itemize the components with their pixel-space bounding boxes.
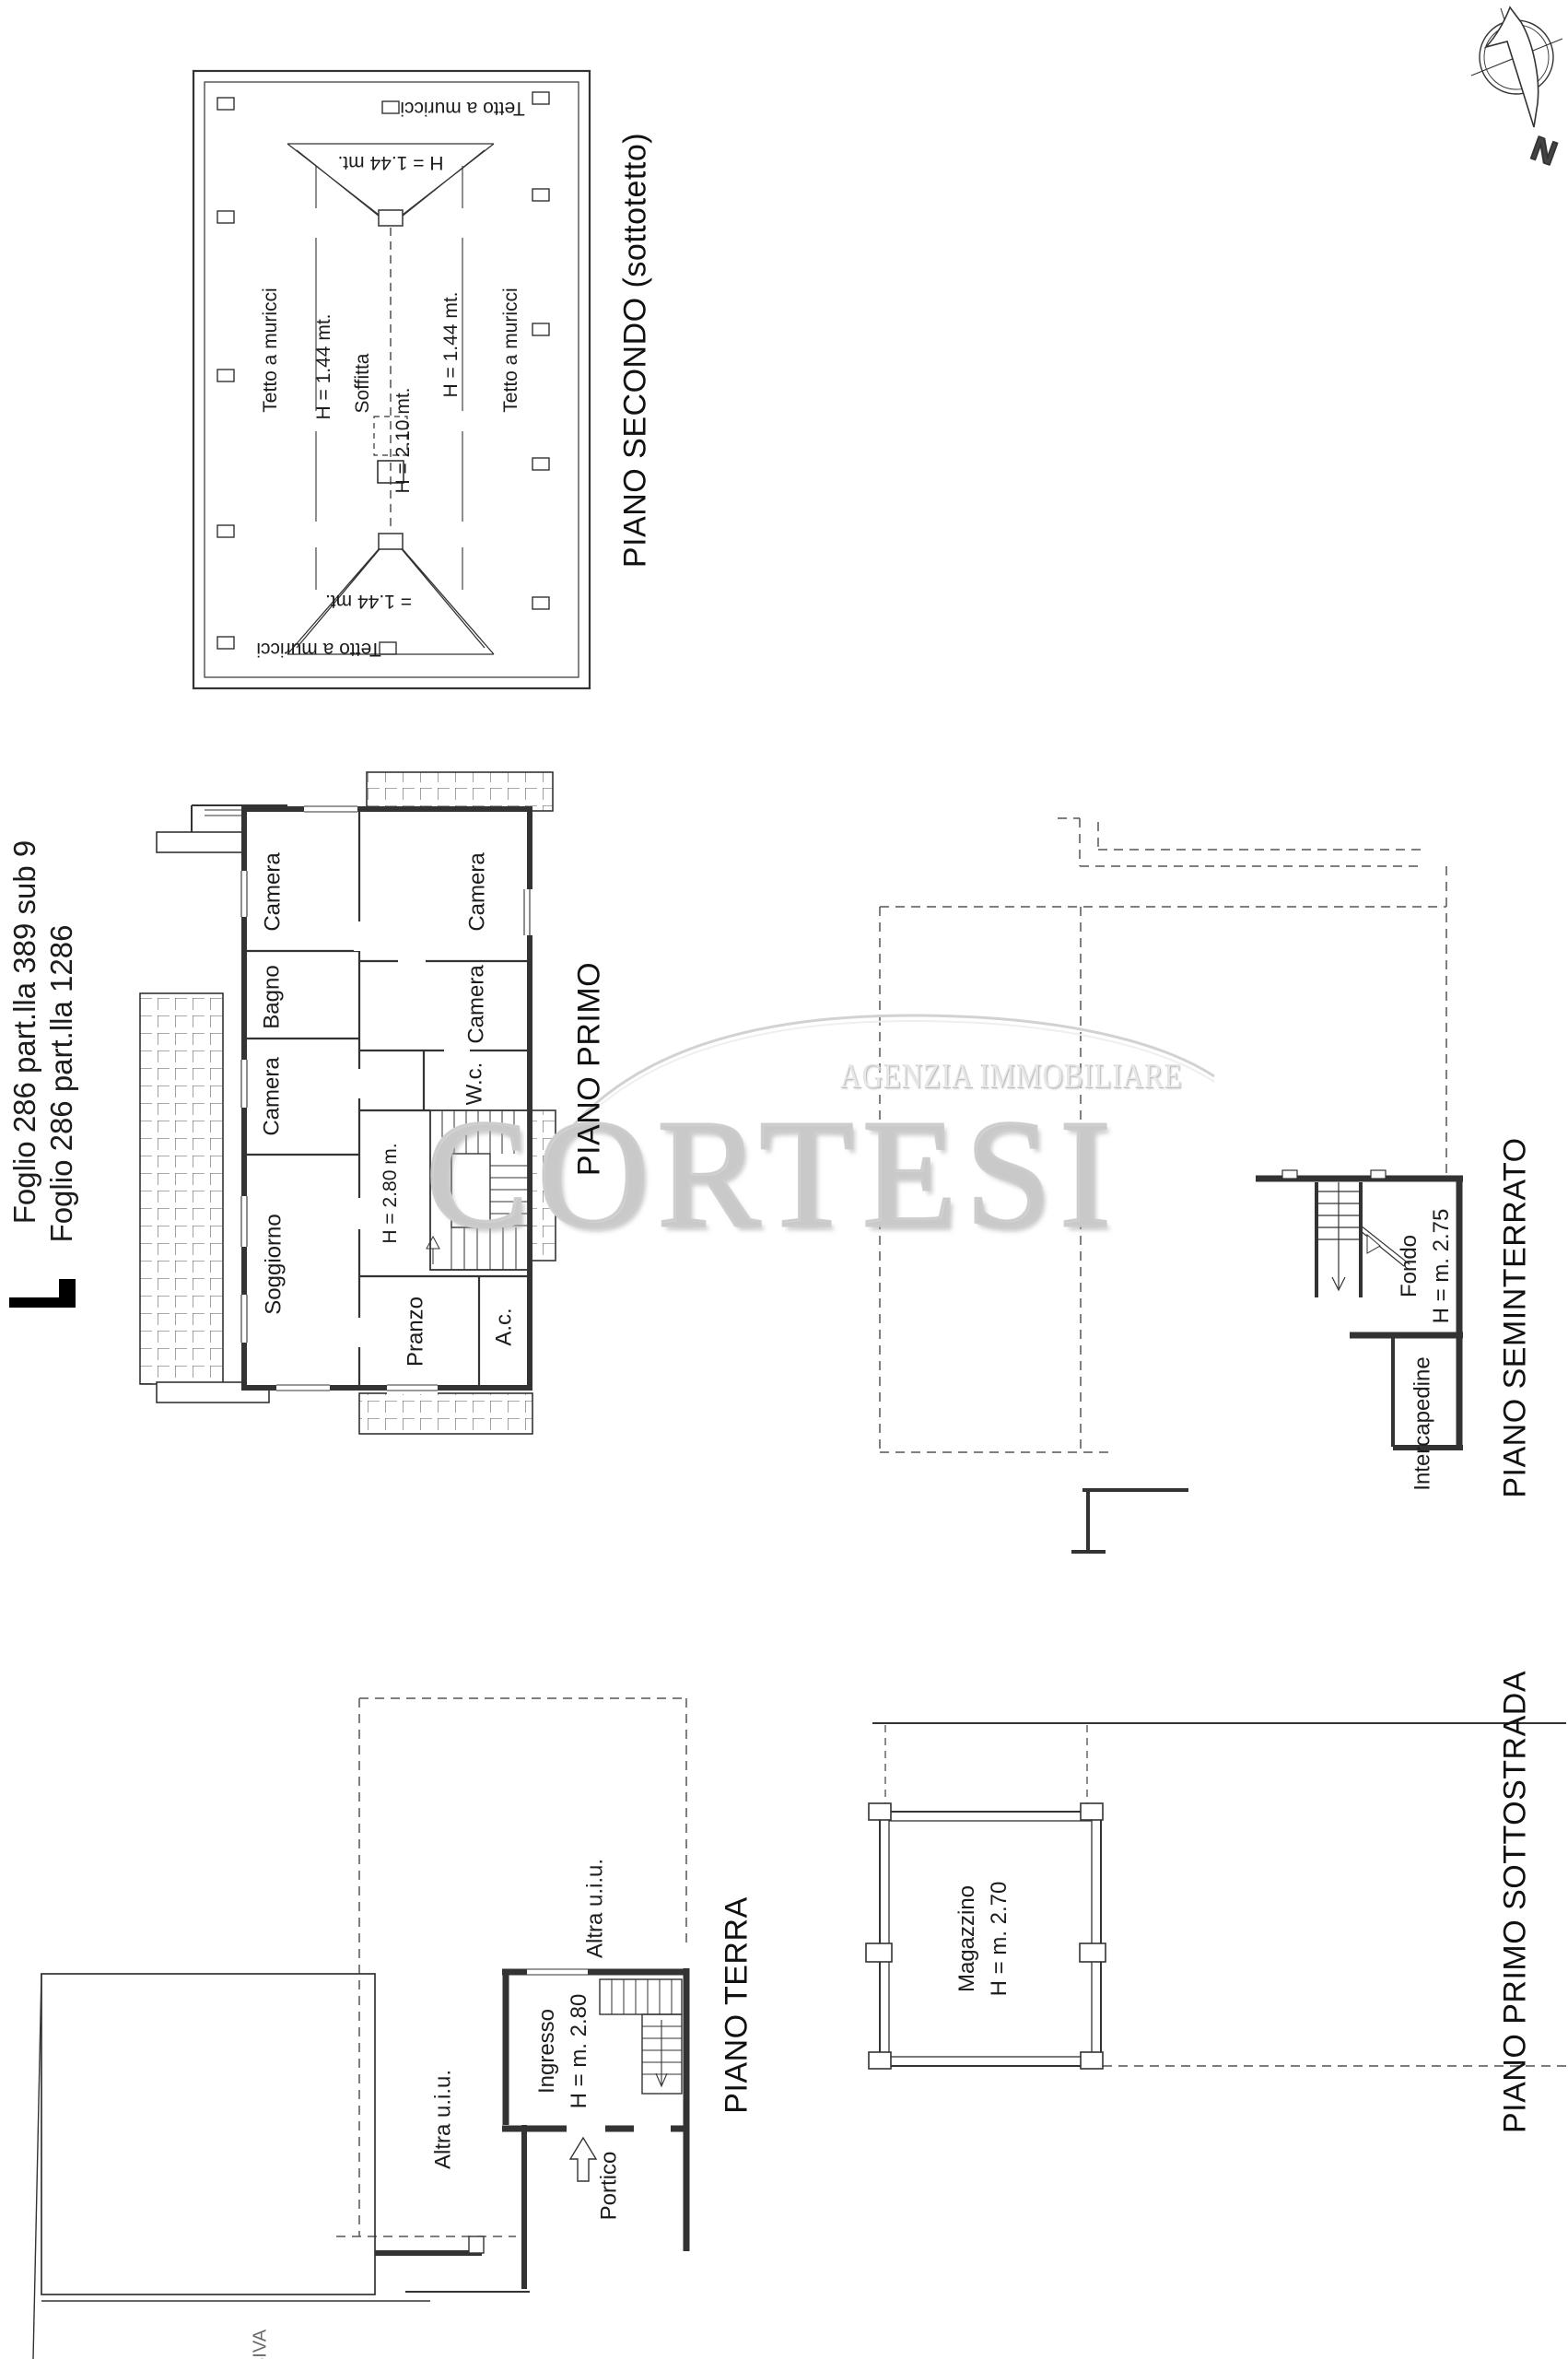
label-h144-left: H = 1.44 mt. [310, 314, 338, 420]
room-wc: W.c. [460, 1062, 492, 1106]
label-magazzino-height: H = m. 2.70 [984, 1882, 1016, 1997]
label-magazzino: Magazzino H = m. 2.70 [952, 1882, 1016, 1997]
corner-mark [9, 1279, 76, 1308]
entry-arrow [570, 2138, 596, 2181]
room-bagno: Bagno [257, 965, 289, 1028]
terrace-top [367, 772, 553, 811]
title-piano-secondo: PIANO SECONDO (sottotetto) [613, 133, 658, 568]
label-h144-right: H = 1.44 mt. [438, 292, 465, 398]
label-tetto-left: Tetto a muricci [257, 288, 285, 412]
label-soffitta: Soffitta [349, 354, 377, 414]
label-fondo-height: H = m. 2.75 [1426, 1209, 1458, 1324]
label-tetto-top: Tetto a muricci [400, 94, 524, 122]
staircase-terra [600, 1979, 682, 2094]
label-fondo: Fondo H = m. 2.75 [1394, 1209, 1458, 1324]
label-h144-gable-top: H = 1.44 mt. [338, 148, 444, 176]
label-ingresso-height: H = m. 2.80 [564, 1994, 596, 2109]
title-piano-sottostrada: PIANO PRIMO SOTTOSTRADA [1492, 1671, 1538, 2133]
label-ingresso-name: Ingresso [532, 1994, 564, 2109]
title-piano-primo: PIANO PRIMO [567, 962, 612, 1176]
label-h144-gable-bottom: = 1.44 mt. [325, 587, 412, 615]
room-soggiorno: Soggiorno [259, 1214, 291, 1314]
label-altra-uiu-top: Altra u.i.u. [580, 1859, 613, 1958]
bottom-partial-text: SIVA [248, 2330, 275, 2359]
label-ingresso: Ingresso H = m. 2.80 [532, 1994, 596, 2109]
plot-boundary [33, 1974, 41, 2359]
adjacent-unit-outline [41, 1974, 375, 2294]
ramp-wall [1071, 1490, 1188, 1554]
label-tetto-bottom: Tetto a muricci [256, 635, 380, 663]
balcony-left [140, 993, 223, 1384]
compass-needle [1486, 7, 1539, 127]
label-magazzino-name: Magazzino [952, 1882, 984, 1997]
room-camera-top-left: Camera [258, 852, 290, 931]
terra-dashed-outline [336, 1698, 686, 2236]
floor-plan-page: AGENZIA IMMOBILIARE CORTESI Foglio 286 p… [0, 0, 1568, 2359]
label-portico: Portico [594, 2152, 626, 2221]
label-intercapedine: Intercapedine [1408, 1356, 1440, 1490]
balcony-bottom [359, 1393, 532, 1434]
title-piano-terra: PIANO TERRA [714, 1896, 759, 2113]
label-tetto-right: Tetto a muricci [497, 288, 525, 412]
label-altra-uiu-left: Altra u.i.u. [428, 2070, 461, 2169]
cadastral-line-2: Foglio 286 part.lla 1286 [40, 925, 84, 1243]
title-piano-seminterrato: PIANO SEMINTERRATO [1492, 1137, 1538, 1497]
label-h210-ridge: H = 2.10 mt. [390, 388, 417, 494]
label-fondo-name: Fondo [1394, 1209, 1426, 1324]
north-compass [1471, 7, 1562, 127]
room-camera-mid-right: Camera [462, 965, 494, 1043]
label-h280: H = 2.80 m. [377, 1143, 404, 1243]
room-camera-top-right: Camera [462, 852, 495, 931]
room-ac: A.c. [489, 1308, 521, 1345]
room-camera-mid-left: Camera [257, 1057, 289, 1135]
room-pranzo: Pranzo [401, 1297, 433, 1367]
watermark-brand: CORTESI [426, 1086, 1119, 1263]
